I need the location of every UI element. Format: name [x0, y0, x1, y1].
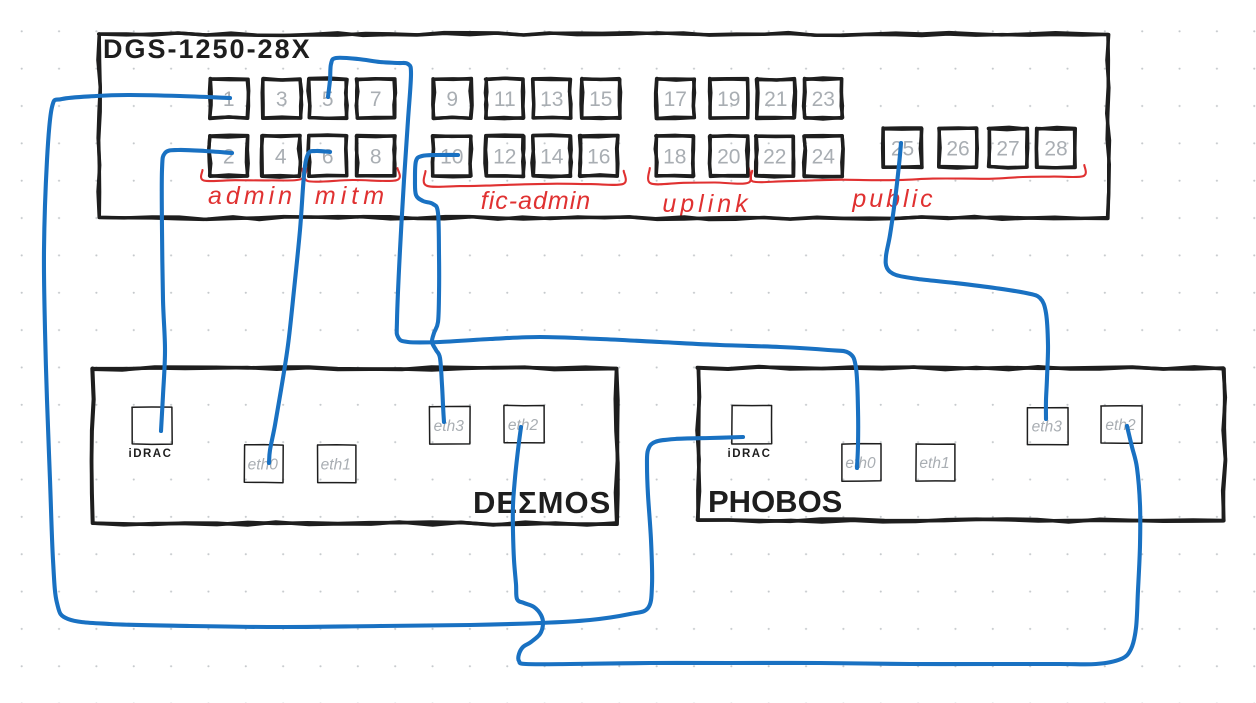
svg-text:16: 16 — [587, 146, 610, 169]
svg-text:21: 21 — [764, 88, 787, 111]
svg-text:4: 4 — [275, 146, 287, 169]
svg-text:2: 2 — [223, 146, 235, 169]
svg-text:mitm: mitm — [315, 182, 389, 210]
svg-text:eth2: eth2 — [1105, 417, 1136, 434]
svg-text:8: 8 — [370, 146, 382, 169]
svg-text:eth1: eth1 — [919, 455, 949, 472]
svg-text:6: 6 — [322, 146, 334, 169]
svg-text:13: 13 — [540, 88, 563, 111]
svg-text:15: 15 — [589, 88, 612, 111]
svg-text:19: 19 — [717, 88, 740, 111]
svg-text:20: 20 — [717, 146, 740, 169]
svg-text:DEΣMOS: DEΣMOS — [473, 485, 611, 520]
svg-text:9: 9 — [446, 88, 458, 111]
svg-text:24: 24 — [812, 146, 836, 169]
svg-text:uplink: uplink — [662, 190, 751, 218]
svg-text:DGS-1250-28X: DGS-1250-28X — [103, 34, 312, 64]
svg-text:eth1: eth1 — [321, 456, 351, 473]
svg-text:eth0: eth0 — [248, 456, 279, 473]
svg-text:27: 27 — [996, 137, 1019, 160]
svg-text:22: 22 — [763, 146, 786, 169]
svg-text:eth3: eth3 — [434, 418, 465, 435]
svg-text:eth3: eth3 — [1032, 419, 1063, 436]
svg-text:PHOBOS: PHOBOS — [708, 484, 842, 519]
svg-text:7: 7 — [370, 88, 382, 111]
svg-text:12: 12 — [493, 146, 516, 169]
svg-text:17: 17 — [664, 88, 687, 111]
svg-text:18: 18 — [663, 146, 686, 169]
svg-text:eth0: eth0 — [845, 455, 876, 472]
svg-text:28: 28 — [1044, 137, 1067, 160]
svg-text:fic-admin: fic-admin — [481, 187, 591, 215]
svg-text:iDRAC: iDRAC — [129, 448, 173, 460]
svg-text:14: 14 — [540, 146, 564, 169]
svg-text:iDRAC: iDRAC — [728, 448, 772, 460]
svg-text:11: 11 — [494, 88, 516, 111]
svg-text:admin: admin — [208, 182, 296, 210]
svg-text:26: 26 — [946, 137, 969, 160]
svg-text:eth2: eth2 — [508, 417, 539, 434]
svg-text:3: 3 — [276, 88, 288, 111]
svg-text:23: 23 — [812, 88, 835, 111]
